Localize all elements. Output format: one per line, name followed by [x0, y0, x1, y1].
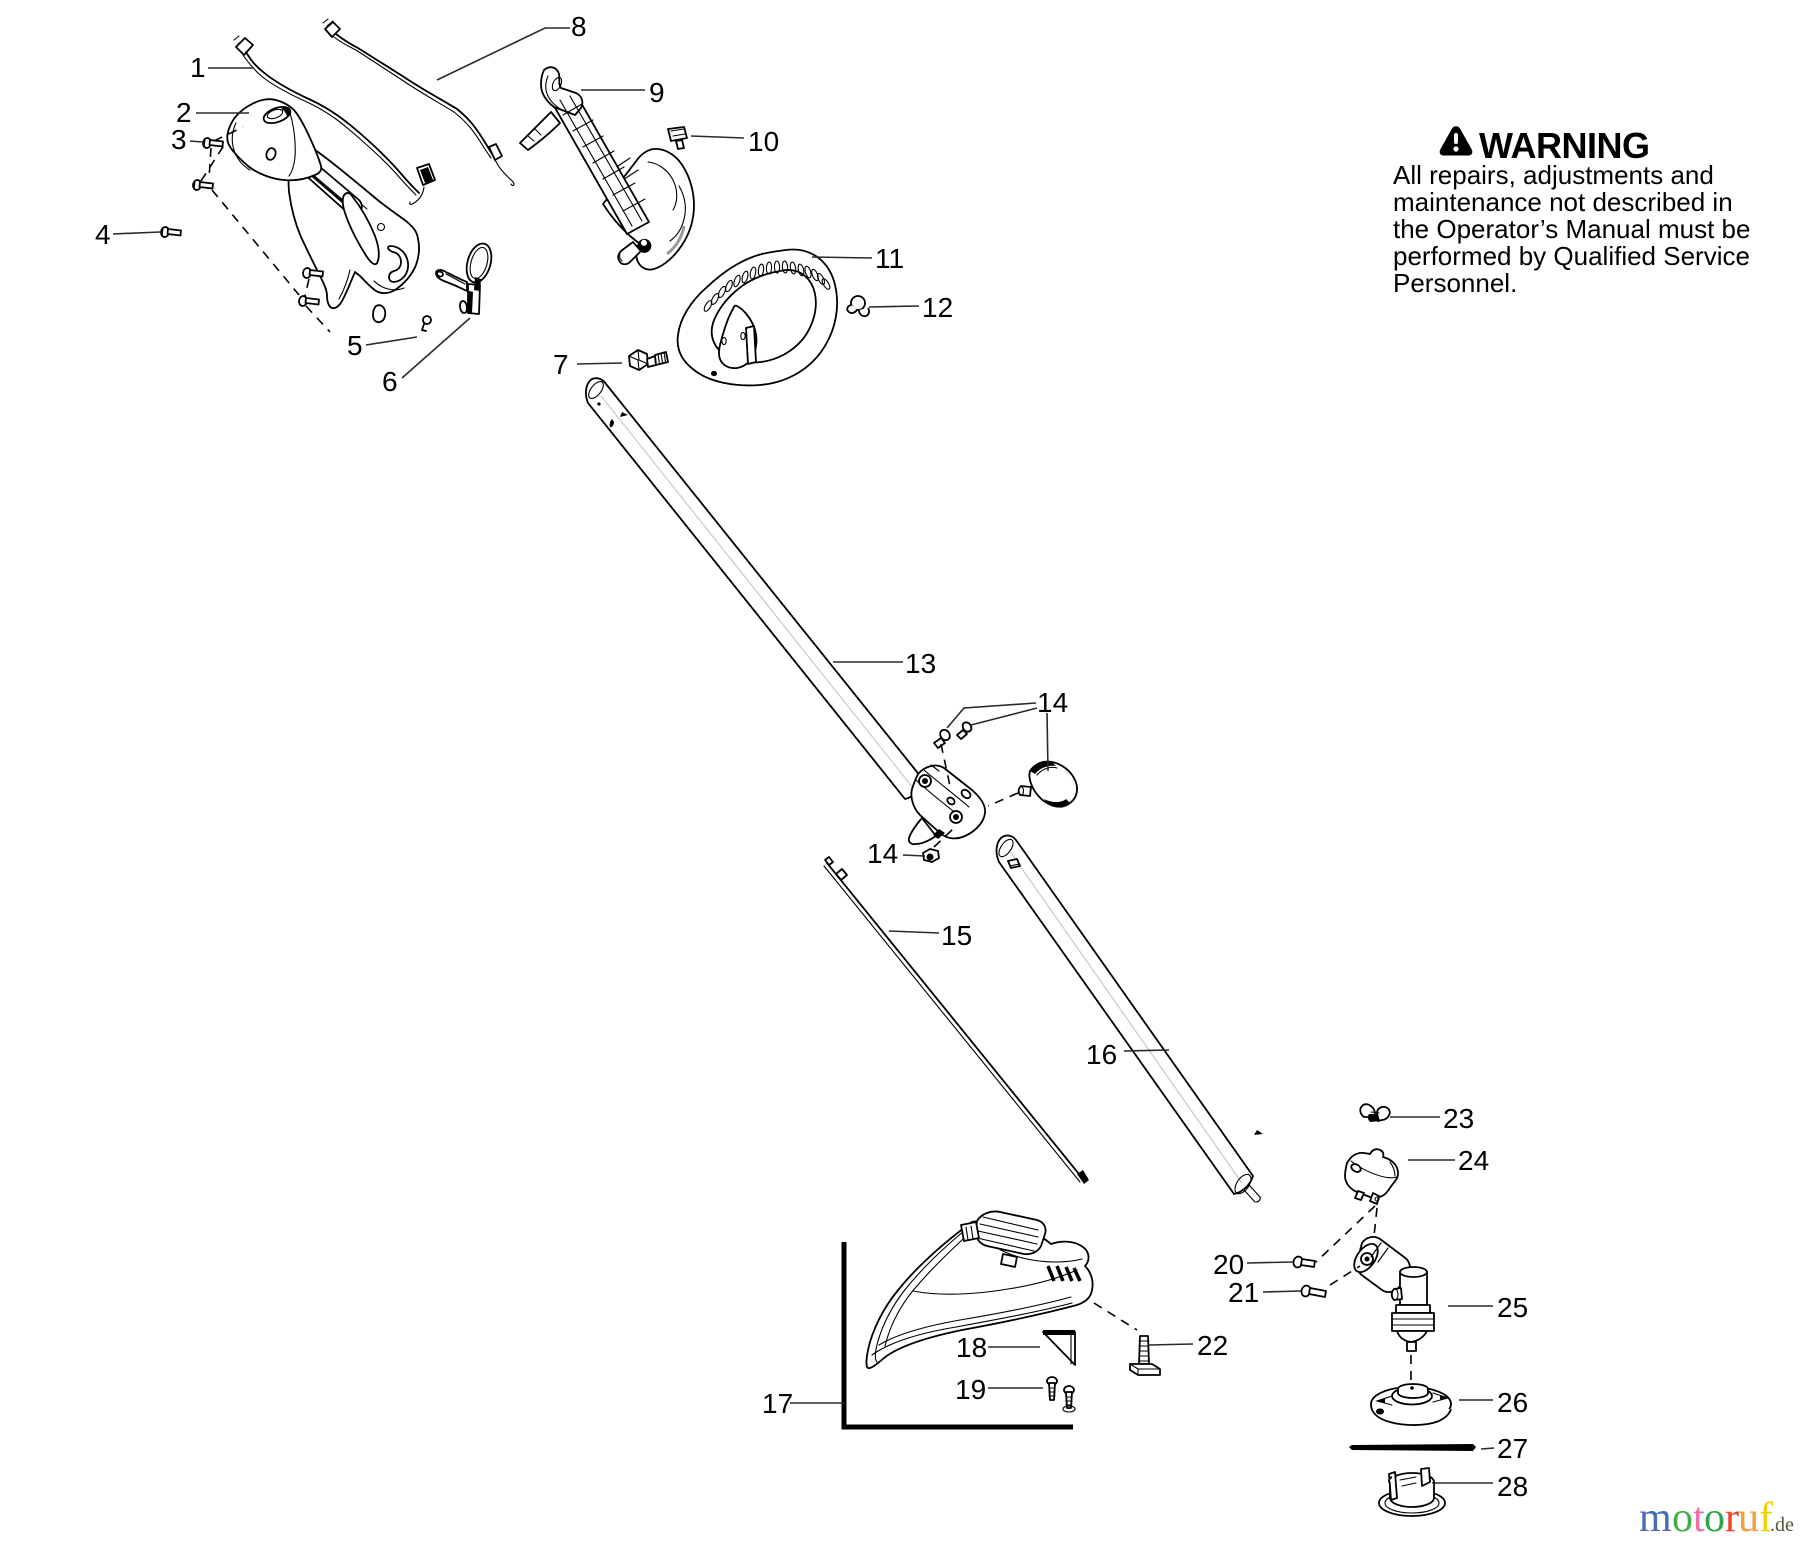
svg-text:26: 26: [1497, 1387, 1528, 1418]
svg-text:o: o: [1672, 1495, 1693, 1541]
svg-text:5: 5: [347, 330, 363, 361]
svg-text:maintenance not described in: maintenance not described in: [1393, 187, 1733, 217]
svg-text:23: 23: [1443, 1103, 1474, 1134]
svg-text:25: 25: [1497, 1292, 1528, 1323]
svg-text:17: 17: [762, 1388, 793, 1419]
svg-text:22: 22: [1197, 1330, 1228, 1361]
svg-text:10: 10: [748, 126, 779, 157]
svg-text:19: 19: [955, 1374, 986, 1405]
svg-text:r: r: [1725, 1495, 1739, 1541]
svg-text:20: 20: [1213, 1249, 1244, 1280]
svg-text:13: 13: [905, 648, 936, 679]
svg-text:24: 24: [1458, 1145, 1489, 1176]
svg-text:performed by Qualified Service: performed by Qualified Service: [1393, 241, 1750, 271]
svg-text:Personnel.: Personnel.: [1393, 268, 1517, 298]
svg-text:14: 14: [867, 838, 898, 869]
svg-text:.de: .de: [1770, 1514, 1794, 1536]
svg-text:27: 27: [1497, 1433, 1528, 1464]
svg-text:11: 11: [875, 243, 904, 274]
svg-text:12: 12: [922, 292, 953, 323]
svg-text:3: 3: [171, 124, 187, 155]
svg-text:9: 9: [649, 77, 665, 108]
svg-text:28: 28: [1497, 1471, 1528, 1502]
svg-text:u: u: [1738, 1495, 1759, 1541]
svg-text:1: 1: [190, 52, 206, 83]
svg-text:m: m: [1639, 1495, 1672, 1541]
svg-text:21: 21: [1228, 1277, 1259, 1308]
svg-text:the Operator’s Manual must be: the Operator’s Manual must be: [1393, 214, 1750, 244]
svg-text:14: 14: [1037, 687, 1068, 718]
svg-text:4: 4: [95, 219, 111, 250]
svg-text:15: 15: [941, 920, 972, 951]
svg-text:18: 18: [956, 1332, 987, 1363]
svg-text:16: 16: [1086, 1039, 1117, 1070]
svg-text:6: 6: [382, 366, 398, 397]
svg-text:o: o: [1704, 1495, 1725, 1541]
svg-text:8: 8: [571, 11, 587, 42]
svg-text:7: 7: [553, 349, 569, 380]
svg-text:All repairs, adjustments and: All repairs, adjustments and: [1393, 160, 1714, 190]
